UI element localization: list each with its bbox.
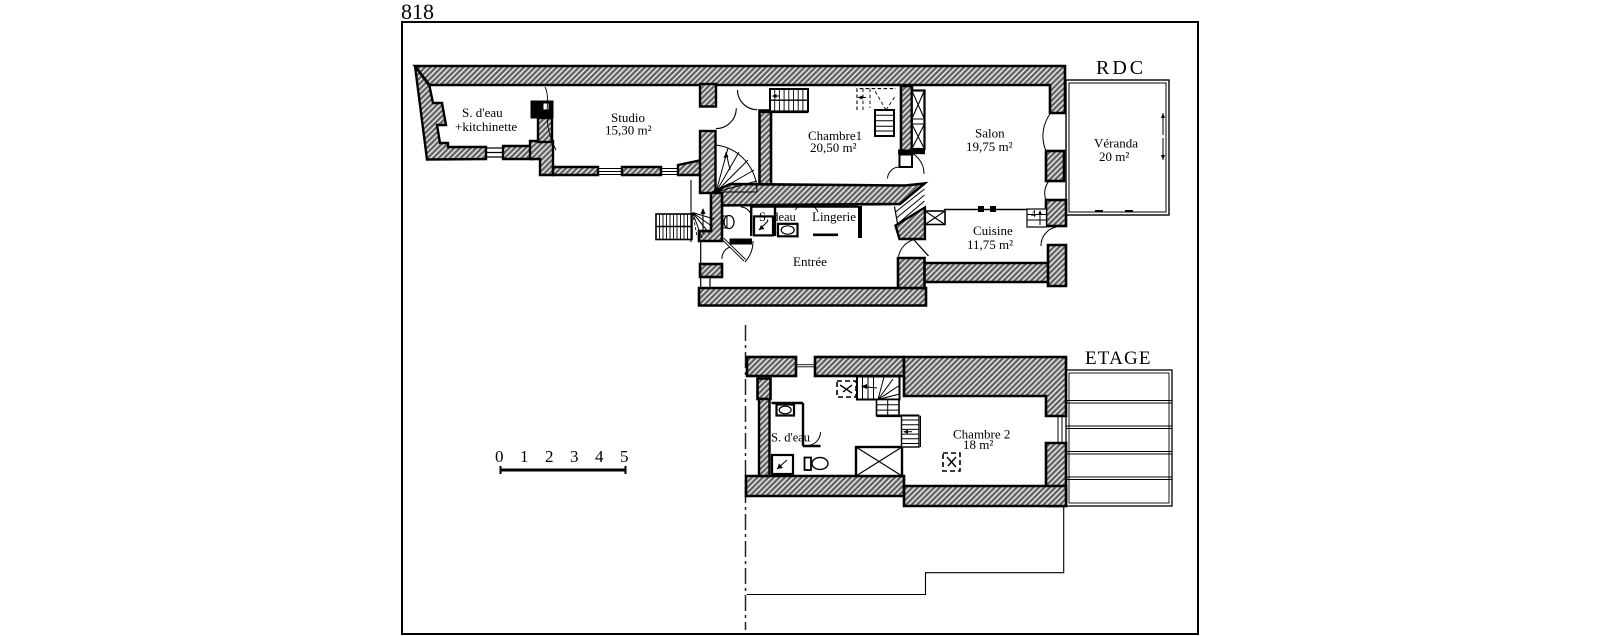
svg-text:Entrée: Entrée (793, 254, 827, 269)
svg-text:S. d'eau: S. d'eau (462, 105, 503, 120)
svg-text:Cuisine: Cuisine (973, 223, 1013, 238)
svg-text:15,30 m²: 15,30 m² (605, 123, 652, 138)
svg-text:18 m²: 18 m² (963, 437, 993, 452)
svg-text:+kitchinette: +kitchinette (455, 119, 517, 134)
svg-text:20 m²: 20 m² (1099, 149, 1129, 164)
svg-text:S. d'eau: S. d'eau (771, 431, 811, 445)
svg-text:11,75 m²: 11,75 m² (967, 237, 1013, 252)
svg-text:S. deau: S. deau (759, 210, 797, 224)
svg-text:818: 818 (401, 0, 434, 24)
svg-text:2: 2 (545, 447, 554, 466)
svg-text:ETAGE: ETAGE (1085, 348, 1152, 369)
svg-text:1: 1 (520, 447, 529, 466)
svg-text:20,50 m²: 20,50 m² (810, 140, 857, 155)
svg-text:4: 4 (595, 447, 604, 466)
svg-text:RDC: RDC (1096, 57, 1146, 79)
svg-text:3: 3 (570, 447, 579, 466)
svg-text:19,75 m²: 19,75 m² (966, 139, 1013, 154)
svg-text:0: 0 (495, 447, 504, 466)
svg-text:Lingerie: Lingerie (812, 209, 856, 224)
svg-text:5: 5 (620, 447, 629, 466)
svg-text:4: 4 (1031, 209, 1036, 220)
